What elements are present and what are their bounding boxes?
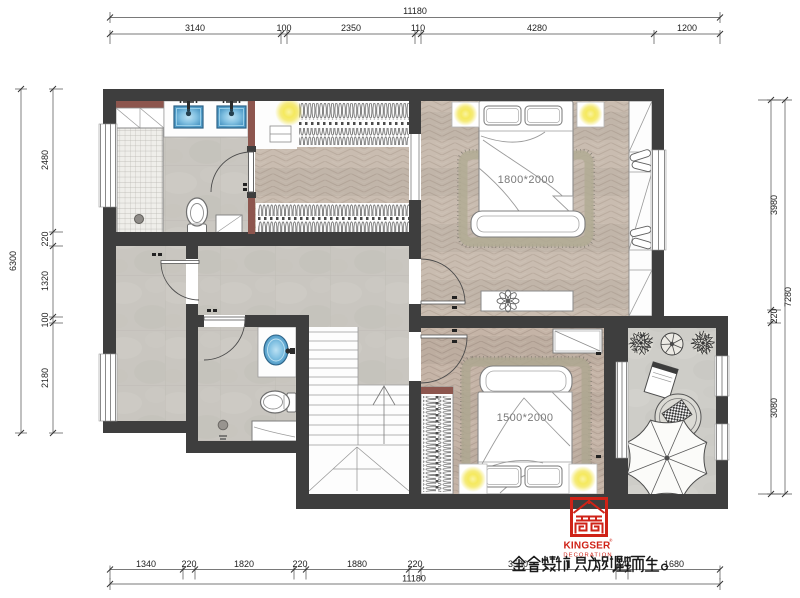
svg-text:11180: 11180 bbox=[402, 574, 426, 584]
svg-text:220: 220 bbox=[40, 231, 50, 246]
svg-text:4280: 4280 bbox=[527, 23, 547, 33]
svg-text:3140: 3140 bbox=[185, 23, 205, 33]
svg-text:100: 100 bbox=[40, 312, 50, 327]
svg-text:220: 220 bbox=[292, 559, 307, 569]
svg-text:6300: 6300 bbox=[8, 251, 18, 271]
svg-text:3980: 3980 bbox=[769, 195, 779, 215]
svg-text:100: 100 bbox=[276, 23, 291, 33]
svg-text:11180: 11180 bbox=[403, 6, 427, 16]
svg-text:1200: 1200 bbox=[677, 23, 697, 33]
svg-text:1500*2000: 1500*2000 bbox=[497, 412, 554, 424]
svg-text:1320: 1320 bbox=[40, 271, 50, 291]
svg-text:220: 220 bbox=[769, 308, 779, 323]
svg-text:2480: 2480 bbox=[40, 150, 50, 170]
svg-text:2350: 2350 bbox=[341, 23, 361, 33]
svg-text:1340: 1340 bbox=[136, 559, 156, 569]
svg-text:7280: 7280 bbox=[783, 287, 793, 307]
svg-text:KINGSER: KINGSER bbox=[564, 541, 612, 552]
svg-text:220: 220 bbox=[181, 559, 196, 569]
svg-text:1880: 1880 bbox=[347, 559, 367, 569]
svg-text:2180: 2180 bbox=[40, 368, 50, 388]
svg-text:1820: 1820 bbox=[234, 559, 254, 569]
svg-text:3080: 3080 bbox=[769, 398, 779, 418]
svg-text:1800*2000: 1800*2000 bbox=[498, 174, 555, 186]
svg-text:220: 220 bbox=[407, 559, 422, 569]
svg-text:110: 110 bbox=[411, 23, 425, 33]
